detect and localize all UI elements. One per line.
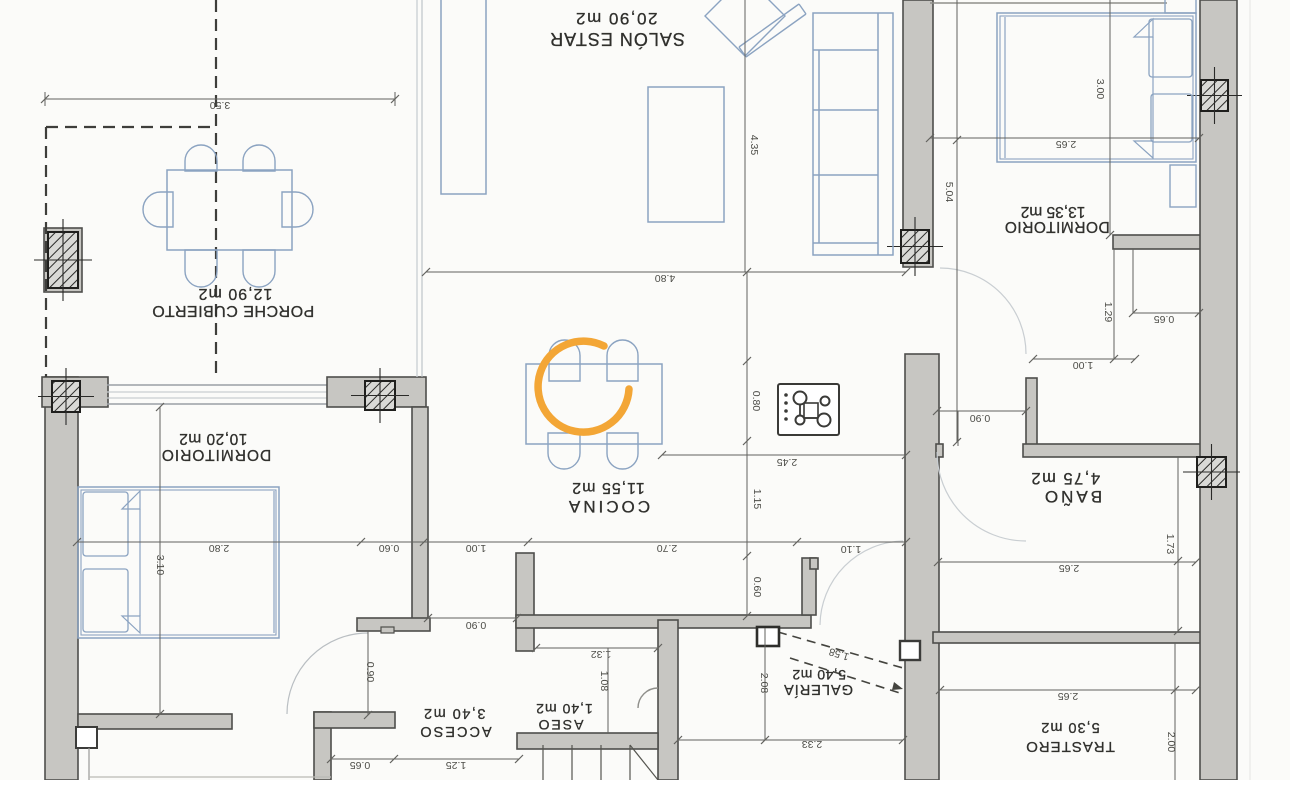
svg-text:2.80: 2.80 [209,542,230,554]
svg-text:4.35: 4.35 [748,135,760,156]
svg-text:2.70: 2.70 [657,542,678,554]
svg-text:SALÓN ESTAR: SALÓN ESTAR [549,29,685,50]
svg-text:ASEO: ASEO [537,717,584,733]
svg-text:10,20 m2: 10,20 m2 [179,430,248,447]
svg-text:1.08: 1.08 [598,671,610,692]
svg-text:13,35 m2: 13,35 m2 [1021,203,1086,220]
svg-text:0.80: 0.80 [750,391,762,412]
svg-text:5,30 m2: 5,30 m2 [1040,719,1099,735]
svg-text:1.15: 1.15 [751,489,763,510]
svg-text:2.45: 2.45 [777,456,798,468]
svg-text:DORMITORIO: DORMITORIO [161,446,271,463]
svg-text:2.65: 2.65 [1058,690,1079,702]
svg-text:ACCESO: ACCESO [418,723,491,739]
svg-text:0.65: 0.65 [350,759,371,771]
svg-text:1.25: 1.25 [446,759,467,771]
svg-text:0.65: 0.65 [1154,313,1175,325]
svg-text:TRASTERO: TRASTERO [1025,738,1115,755]
svg-text:3.10: 3.10 [154,555,166,576]
svg-text:20,90 m2: 20,90 m2 [575,9,658,28]
svg-text:11,55 m2: 11,55 m2 [571,479,645,496]
svg-text:PORCHE CUBIERTO: PORCHE CUBIERTO [152,302,315,319]
svg-text:2.65: 2.65 [1059,562,1080,574]
svg-text:4.80: 4.80 [655,272,676,284]
svg-text:1.73: 1.73 [1164,534,1176,555]
svg-text:5,40 m2: 5,40 m2 [792,667,846,683]
svg-text:0.60: 0.60 [379,542,400,554]
svg-text:3.50: 3.50 [210,99,231,111]
svg-text:0.90: 0.90 [466,619,487,631]
svg-text:COCINA: COCINA [566,497,650,516]
svg-text:2.08: 2.08 [758,673,770,694]
svg-text:BAÑO: BAÑO [1042,487,1102,506]
svg-text:1.10: 1.10 [841,543,862,555]
svg-text:0.90: 0.90 [970,412,991,424]
svg-text:0.60: 0.60 [751,577,763,598]
svg-text:2.00: 2.00 [1165,732,1177,753]
svg-text:1.29: 1.29 [1102,302,1114,323]
svg-text:0.90: 0.90 [364,662,376,683]
svg-text:4,75 m2: 4,75 m2 [1030,469,1100,487]
svg-text:3,40 m2: 3,40 m2 [423,705,486,721]
svg-text:1.00: 1.00 [1073,359,1094,371]
svg-text:5.04: 5.04 [943,182,955,203]
svg-text:12,90 m2: 12,90 m2 [198,285,273,302]
svg-text:3.00: 3.00 [1094,79,1106,100]
svg-text:2.33: 2.33 [802,738,823,750]
svg-text:1.00: 1.00 [466,542,487,554]
svg-text:1,40 m2: 1,40 m2 [535,701,593,717]
svg-text:2.65: 2.65 [1056,138,1077,150]
